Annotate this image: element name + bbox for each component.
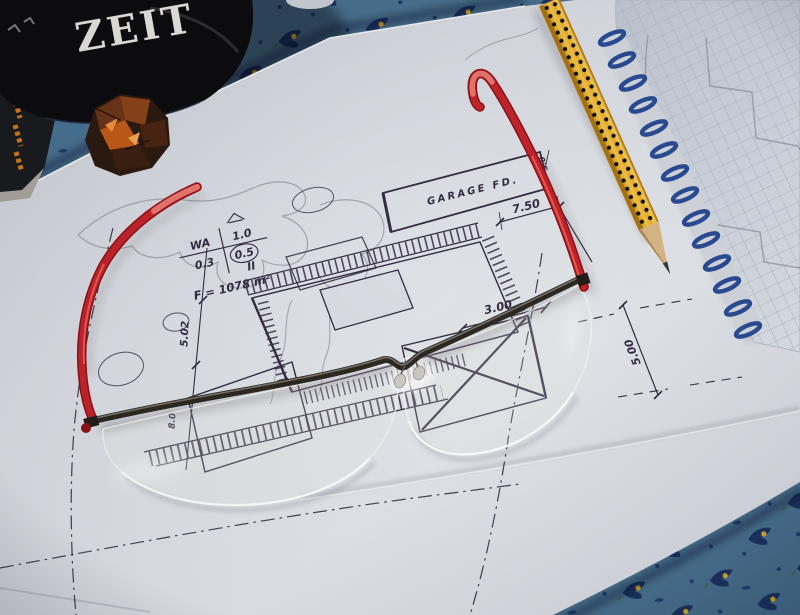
vignette [0, 0, 800, 615]
photo-scene: GARAGE FD. 7.50 [0, 0, 800, 615]
